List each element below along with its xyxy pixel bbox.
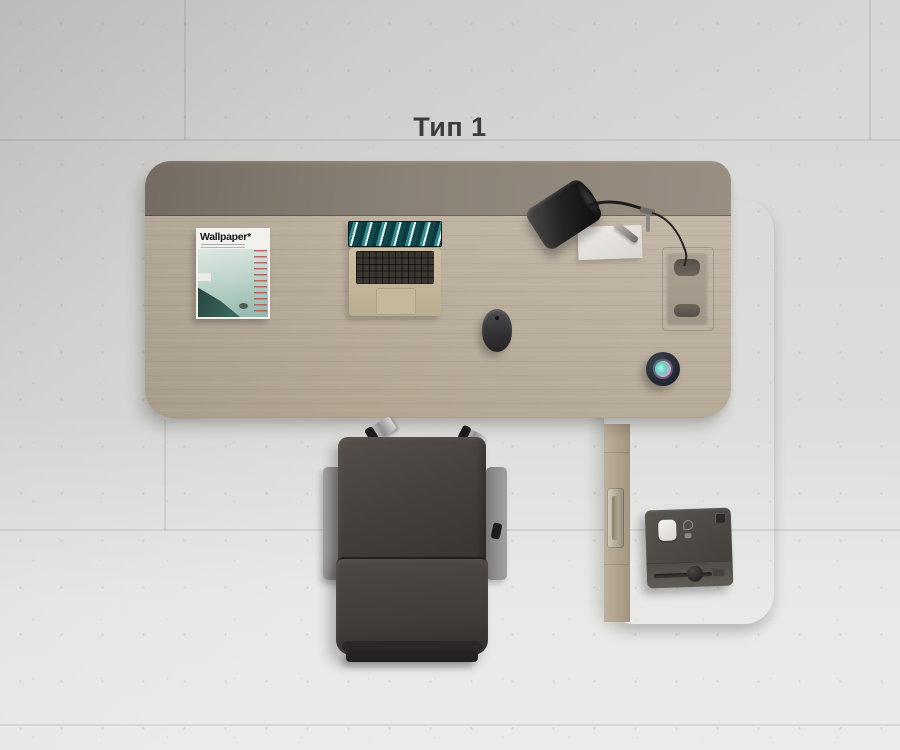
laptop-wallpaper xyxy=(349,222,441,246)
printer-label xyxy=(684,533,691,538)
desk-back-panel xyxy=(145,161,731,216)
laptop-trackpad xyxy=(376,288,416,315)
smart-speaker xyxy=(646,352,680,386)
laptop-keyboard xyxy=(356,251,434,284)
cable-grommet-face xyxy=(667,252,707,324)
computer-mouse xyxy=(482,309,512,352)
chair-base xyxy=(346,651,478,662)
cabinet-handle-slot xyxy=(612,496,619,540)
cabinet-side-panel xyxy=(604,424,630,622)
printer-latch xyxy=(712,568,725,577)
page-title: Тип 1 xyxy=(0,112,900,143)
cabinet-handle xyxy=(607,488,624,548)
mouse-scroll-dot xyxy=(495,316,499,320)
scene: Тип 1 Wallpaper* xyxy=(0,0,900,750)
magazine-masthead: Wallpaper* xyxy=(200,231,251,243)
magazine-subtitle-lines xyxy=(201,244,245,245)
cable-grommet-slot-bottom xyxy=(674,304,700,317)
printer-paper-slot xyxy=(654,572,712,578)
cable-grommet-slot-top xyxy=(674,259,700,276)
floor-seam xyxy=(0,724,900,726)
printer-icon xyxy=(683,520,693,530)
printer-power-button xyxy=(658,519,677,541)
cable-grommet xyxy=(662,247,714,331)
cabinet-seam xyxy=(604,452,629,453)
printer-front-panel xyxy=(647,560,734,588)
printer-knob xyxy=(687,566,704,583)
laptop-base xyxy=(349,248,441,316)
magazine-toc-lines xyxy=(254,250,267,312)
office-chair xyxy=(320,420,512,665)
smart-speaker-display xyxy=(653,359,673,379)
magazine: Wallpaper* xyxy=(196,228,270,319)
printer-logo-badge xyxy=(715,513,725,523)
magazine-cover-rock xyxy=(239,303,248,309)
magazine-cover-label xyxy=(198,273,211,281)
cabinet-seam xyxy=(604,564,629,565)
laptop-screen xyxy=(348,221,442,247)
magazine-cover-landscape xyxy=(198,284,240,317)
laptop xyxy=(348,221,442,316)
chair-seat xyxy=(336,557,488,655)
floor-seam xyxy=(164,420,166,530)
printer xyxy=(645,508,734,589)
